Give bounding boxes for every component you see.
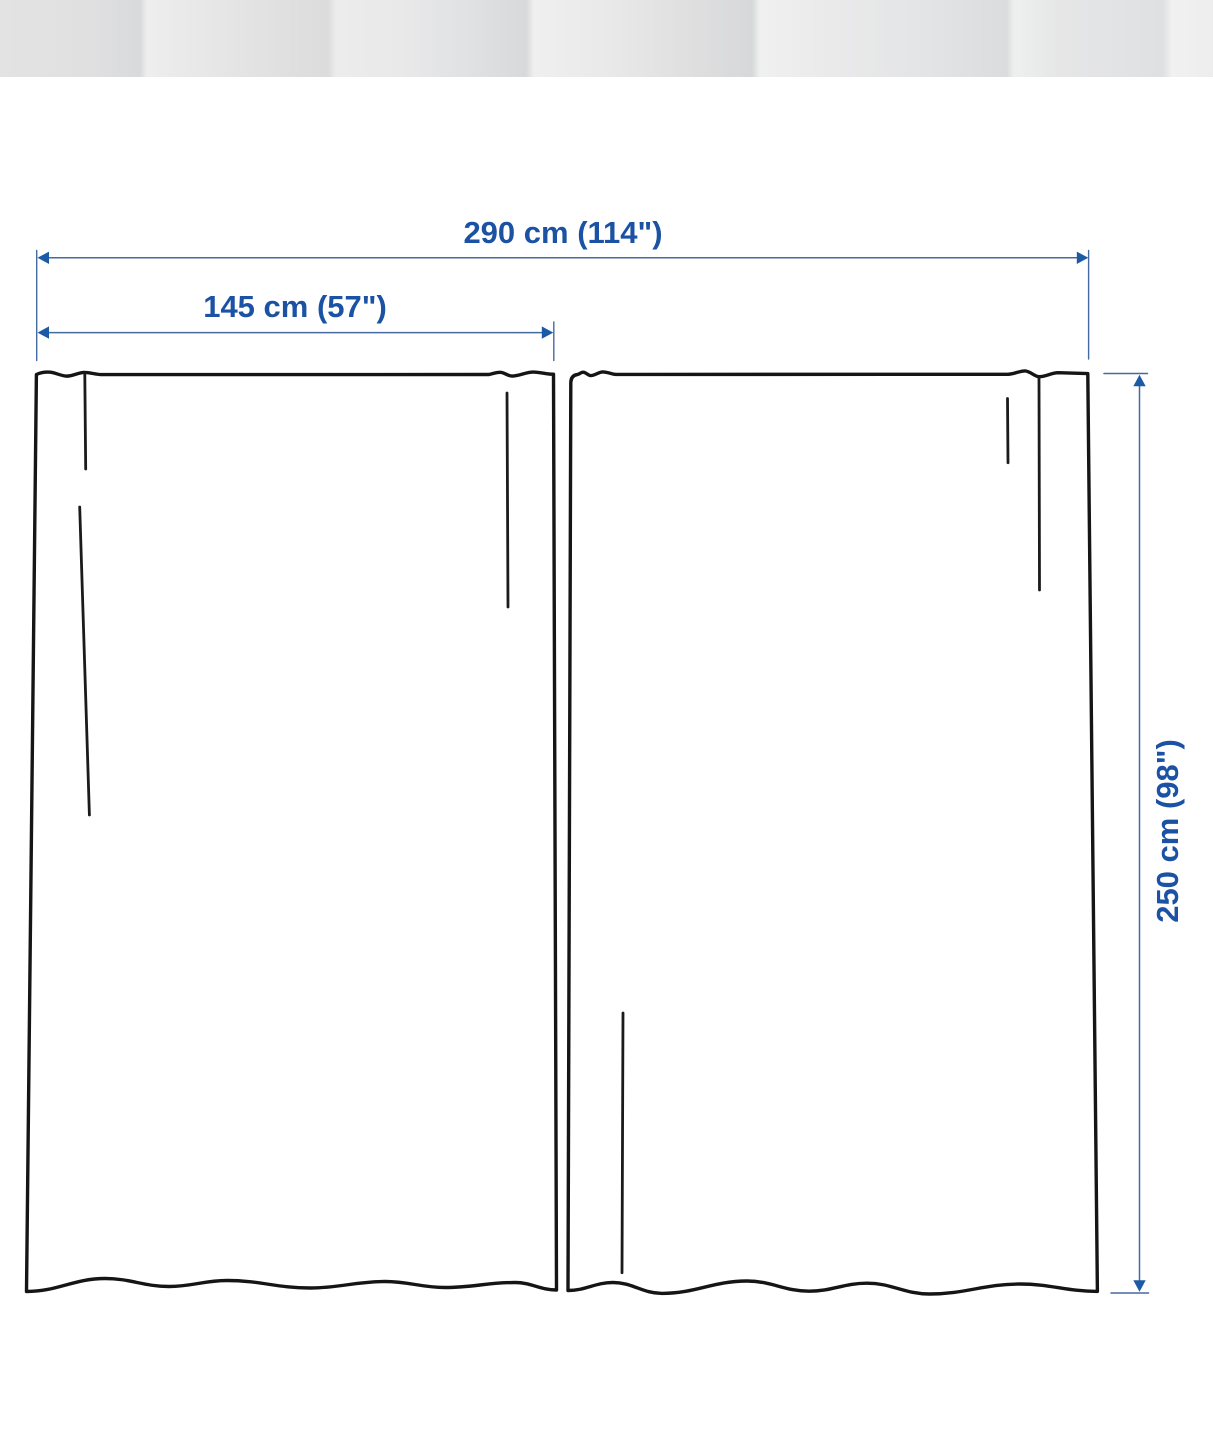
svg-text:290 cm (114"): 290 cm (114") xyxy=(463,215,662,250)
svg-text:145 cm (57"): 145 cm (57") xyxy=(203,289,387,324)
svg-text:250 cm (98"): 250 cm (98") xyxy=(1150,739,1185,923)
